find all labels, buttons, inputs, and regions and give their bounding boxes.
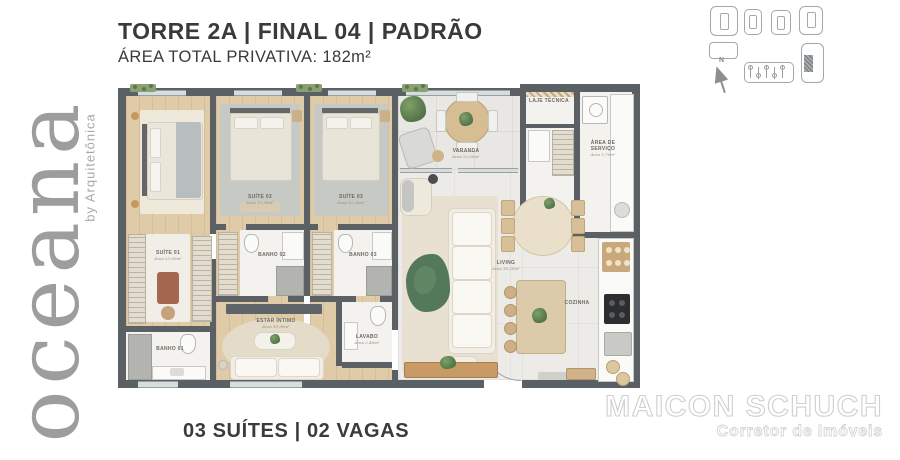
- room-label-lavabo: LAVABO Área 2,40m²: [344, 334, 390, 345]
- pillow: [260, 117, 284, 129]
- planter: [296, 84, 322, 92]
- wall: [310, 296, 356, 302]
- sliding-door: [458, 168, 518, 173]
- cooktop: [604, 294, 630, 324]
- wall: [526, 124, 574, 128]
- throw-blanket: [402, 180, 414, 212]
- pillow: [234, 117, 258, 129]
- floor-lamp: [428, 174, 438, 184]
- pillow: [150, 128, 161, 158]
- wall: [338, 224, 392, 230]
- lamp: [131, 112, 139, 120]
- wall: [342, 362, 392, 368]
- floor-strip-keyplan-icon: [744, 62, 794, 83]
- brand-byline: by Arquitetônica: [83, 88, 98, 248]
- wall: [392, 370, 398, 380]
- wall: [126, 326, 210, 332]
- room-label-laje-tecnica: LAJE TÉCNICA: [526, 98, 572, 104]
- chair: [488, 110, 498, 132]
- pantry-cubbies: [602, 242, 630, 272]
- wall: [336, 302, 342, 366]
- room-label-banho-01: BANHO 01: [144, 346, 196, 352]
- washer: [582, 96, 608, 124]
- planter: [402, 84, 428, 92]
- bed-blanket: [176, 122, 201, 198]
- compass-north-label: N: [719, 57, 724, 64]
- unit-keyplan-icon: [710, 6, 738, 36]
- brand-logo: oceana: [6, 80, 92, 460]
- stool: [504, 340, 517, 353]
- sliding-door: [400, 168, 452, 173]
- chair: [571, 236, 585, 252]
- room-label-suite-03: SUÍTE 03 Área 12,30m²: [318, 194, 384, 205]
- page-subtitle: ÁREA TOTAL PRIVATIVA: 182m²: [118, 48, 371, 67]
- window: [234, 90, 282, 96]
- wall: [310, 224, 318, 230]
- kitchen-sink: [604, 332, 632, 356]
- room-label-area-servico: ÁREA DE SERVIÇO Área 5,70m²: [580, 140, 626, 157]
- plant: [544, 198, 555, 209]
- laje-hatch: [526, 92, 574, 97]
- sofa-cushion: [452, 314, 492, 348]
- wardrobe: [128, 234, 146, 324]
- room-label-varanda: VARANDA Área 22,00m²: [438, 148, 494, 159]
- lamp: [131, 200, 139, 208]
- compass-arrow-tail: [720, 81, 726, 93]
- pouf: [161, 306, 175, 320]
- window: [138, 381, 178, 388]
- wardrobe: [312, 232, 332, 296]
- cabinet: [528, 130, 550, 162]
- window: [328, 90, 376, 96]
- toilet: [244, 234, 259, 253]
- floor-plan: SUÍTE 01 Área 23,00m² BANHO 01 SUÍTE 02 …: [118, 84, 640, 396]
- basket: [616, 372, 630, 386]
- planter: [130, 84, 156, 92]
- window: [230, 381, 302, 388]
- shower: [128, 334, 152, 380]
- plant: [270, 334, 280, 344]
- sofa-cushion: [235, 358, 277, 377]
- chair: [571, 200, 585, 216]
- toilet: [338, 234, 353, 253]
- pillow: [326, 117, 348, 129]
- nightstand: [292, 110, 302, 122]
- sofa-cushion: [452, 280, 492, 314]
- wall: [118, 88, 126, 388]
- chair: [436, 110, 446, 132]
- chair: [501, 218, 515, 234]
- wall: [304, 96, 310, 296]
- chair: [571, 218, 585, 234]
- chair: [501, 200, 515, 216]
- chair: [501, 236, 515, 252]
- wall: [380, 296, 392, 302]
- unit-marker: [777, 16, 785, 30]
- shower: [276, 266, 304, 296]
- pillow: [150, 162, 161, 192]
- room-label-living: LIVING Área 30,20m²: [480, 260, 532, 271]
- room-label-suite-01: SUÍTE 01 Área 23,00m²: [132, 250, 204, 261]
- unit-keyplan-icon: [771, 10, 791, 35]
- entry-bench: [566, 368, 596, 380]
- wall: [392, 96, 398, 330]
- plant: [400, 96, 426, 122]
- unit-marker: [749, 15, 757, 29]
- nightstand: [380, 110, 390, 122]
- room-label-suite-02: SUÍTE 02 Área 12,30m²: [224, 194, 296, 205]
- sofa-cushion: [452, 212, 492, 246]
- highlighted-unit: [804, 55, 813, 72]
- wall: [210, 96, 216, 234]
- ottoman: [157, 272, 179, 304]
- shower: [366, 266, 392, 296]
- stool: [504, 286, 517, 299]
- wall: [216, 296, 268, 302]
- watermark-role: Corretor de Imóveis: [605, 424, 883, 440]
- pillow: [350, 117, 372, 129]
- unit-marker: [720, 13, 729, 30]
- page-title: TORRE 2A | FINAL 04 | PADRÃO: [118, 18, 483, 45]
- unit-keyplan-icon: [744, 9, 762, 35]
- unit-summary: 03 SUÍTES | 02 VAGAS: [183, 420, 409, 443]
- floor-lamp: [218, 360, 228, 370]
- wall: [288, 296, 304, 302]
- plant: [440, 356, 456, 369]
- plant: [459, 112, 473, 126]
- wardrobe: [192, 236, 212, 322]
- wall: [216, 224, 226, 230]
- sink: [170, 368, 184, 376]
- laundry-sink: [614, 202, 630, 218]
- plant: [532, 308, 547, 323]
- stool: [504, 304, 517, 317]
- wardrobe: [218, 232, 238, 296]
- unit-keyplan-icon: [799, 6, 823, 35]
- basket: [606, 360, 620, 374]
- room-label-banho-03: BANHO 03: [336, 252, 390, 258]
- room-label-estar-intimo: ESTAR ÍNTIMO Área 10,90m²: [228, 318, 324, 329]
- unit-marker: [807, 12, 816, 28]
- room-label-cozinha: COZINHA: [554, 300, 600, 306]
- toilet: [370, 306, 386, 326]
- sofa-cushion: [278, 358, 320, 377]
- dining-table: [512, 196, 574, 256]
- chair: [456, 92, 478, 102]
- watermark-name: MAICON SCHUCH: [605, 392, 883, 422]
- unit-highlight-icon: [801, 43, 824, 83]
- wall: [522, 84, 640, 92]
- room-label-banho-02: BANHO 02: [242, 252, 302, 258]
- tv-console: [226, 304, 322, 314]
- wall: [246, 224, 304, 230]
- stool: [504, 322, 517, 335]
- shelving: [552, 130, 574, 176]
- watermark: MAICON SCHUCH Corretor de Imóveis: [605, 392, 883, 440]
